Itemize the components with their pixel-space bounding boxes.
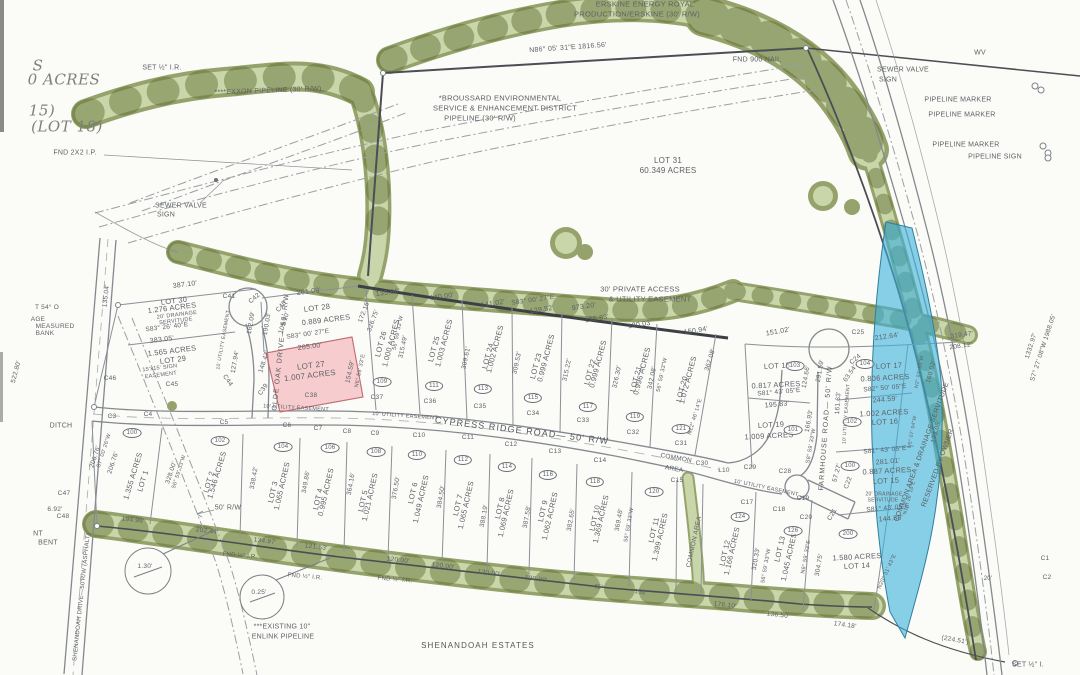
address-oval: 101 bbox=[784, 425, 803, 435]
monument-label: SET ½" I.R. bbox=[142, 65, 181, 72]
map-label: C36 bbox=[424, 399, 437, 406]
map-label: 309.61' bbox=[461, 346, 472, 370]
map-label: WV bbox=[974, 50, 986, 57]
address-oval: 115 bbox=[524, 393, 542, 403]
map-label: 304.75' bbox=[815, 553, 825, 577]
map-label: N6° 59' 33"E bbox=[355, 354, 367, 389]
map-label: DITCH bbox=[50, 423, 73, 430]
map-label: 383.05' bbox=[149, 335, 174, 345]
map-label: 291.59' bbox=[816, 359, 826, 383]
map-label: C44 bbox=[221, 374, 234, 388]
address-oval: 106 bbox=[321, 443, 340, 453]
map-label: 10' UTILITY EASEMENT bbox=[733, 479, 799, 498]
map-label: (LOT 18) bbox=[31, 120, 103, 135]
map-label: 162.09' bbox=[247, 311, 257, 335]
address-oval: 102 bbox=[843, 417, 862, 427]
map-label: 56° 59' 33"W bbox=[761, 548, 772, 583]
map-label: 56° 59' 33"W bbox=[657, 357, 670, 392]
map-label: C14 bbox=[594, 458, 607, 465]
plat-map-scan: S0 ACRES15)(LOT 18)SET ½" I.R.FND 2X2 I.… bbox=[0, 0, 1080, 675]
map-label: 60.349 ACRES bbox=[640, 167, 697, 175]
map-label: C5 bbox=[220, 420, 229, 427]
map-label: C37 bbox=[371, 395, 384, 402]
map-label: 338.42' bbox=[250, 466, 260, 490]
map-label: C4 bbox=[144, 412, 153, 419]
pipeline-label: ****EXXON PIPELINE (30' R/W) bbox=[214, 86, 321, 97]
map-label: C12 bbox=[505, 442, 518, 449]
map-label: SIGN bbox=[157, 212, 175, 219]
map-label: 150.94' bbox=[683, 326, 708, 337]
map-label: C48 bbox=[57, 514, 70, 521]
address-oval: 117 bbox=[579, 402, 597, 412]
map-label: 120.00' bbox=[477, 569, 500, 578]
map-label: 1.30' bbox=[137, 564, 152, 571]
monument-label: SET ½" I. bbox=[1012, 662, 1044, 669]
lot-16-label: LOT 16 bbox=[872, 418, 899, 427]
map-label: 309.53' bbox=[512, 351, 523, 375]
map-label: C17 bbox=[741, 500, 754, 507]
map-label: PIPELINE MARKER bbox=[924, 97, 991, 104]
map-label: C32 bbox=[627, 430, 640, 437]
map-label: 206.76' bbox=[107, 451, 120, 475]
map-label: C28 bbox=[779, 469, 792, 476]
map-label: L10 bbox=[718, 468, 730, 475]
map-label: C30 bbox=[696, 461, 709, 468]
map-label: 10' UTILITY EASEMENT bbox=[263, 405, 329, 414]
map-label: 151.02' bbox=[765, 326, 790, 337]
map-label: SEWER VALVE bbox=[877, 67, 929, 74]
map-label: SEWER VALVE bbox=[155, 203, 207, 210]
map-label: 973.20' bbox=[571, 302, 596, 312]
map-label: C39 bbox=[258, 383, 271, 397]
map-label: 208.12' bbox=[949, 342, 973, 352]
map-label: 121.53' bbox=[304, 543, 327, 552]
map-label: 320.33' bbox=[752, 547, 762, 571]
address-oval: 100 bbox=[841, 461, 860, 471]
map-label: 0.25' bbox=[251, 590, 266, 597]
map-label: C21 bbox=[827, 508, 839, 522]
map-label: 319.47' bbox=[950, 331, 974, 341]
address-oval: 110 bbox=[408, 450, 426, 460]
lot-14-label: LOT 14 bbox=[844, 562, 871, 571]
map-label: PIPELINE MARKER bbox=[928, 112, 995, 119]
map-label: C9 bbox=[371, 431, 380, 438]
map-label: 45' bbox=[593, 584, 603, 592]
map-label: C45 bbox=[166, 382, 179, 389]
map-label: 369.48' bbox=[615, 508, 625, 532]
map-label: C7 bbox=[314, 426, 323, 433]
map-label: 174.18' bbox=[833, 621, 857, 631]
map-label: 388.19' bbox=[480, 504, 490, 528]
map-label: C47 bbox=[58, 491, 71, 498]
map-label: N5° 07' 54"W bbox=[908, 415, 919, 448]
map-label: (224.51') bbox=[941, 635, 969, 646]
map-label: S83° 00' 27"E bbox=[286, 329, 330, 341]
map-label: 265.00' bbox=[297, 342, 322, 352]
map-label: C3 bbox=[108, 414, 117, 421]
map-label: S81° 43' 05"E bbox=[757, 388, 801, 398]
map-label: 139.52' bbox=[529, 305, 554, 316]
map-label: 376.50' bbox=[392, 476, 402, 500]
map-label: AREA bbox=[664, 465, 684, 475]
map-label: C20 bbox=[800, 515, 813, 522]
address-oval: 116 bbox=[539, 470, 557, 480]
labels-layer: S0 ACRES15)(LOT 18)SET ½" I.R.FND 2X2 I.… bbox=[0, 0, 1080, 675]
map-label: ENLINK PIPELINE bbox=[252, 634, 315, 641]
address-oval: 111 bbox=[425, 381, 443, 391]
map-label: 160.02' bbox=[926, 360, 938, 384]
map-label: 387.10' bbox=[172, 280, 197, 290]
map-label: 56° 59' 33"W bbox=[624, 507, 635, 542]
map-label: C34 bbox=[527, 411, 540, 418]
map-label: PIPELINE SIGN bbox=[968, 154, 1022, 161]
address-oval: 104 bbox=[274, 442, 293, 452]
pipeline-label: ***EXISTING 10" bbox=[254, 624, 311, 631]
address-oval: 113 bbox=[474, 384, 492, 394]
lot-19-label: LOT 19 bbox=[758, 421, 785, 430]
map-label: 135.83' bbox=[584, 314, 609, 325]
map-label: FND ½" I.R. bbox=[377, 575, 412, 584]
map-label: SERVITUDE bbox=[868, 499, 899, 504]
map-label: 244.59' bbox=[872, 395, 897, 404]
map-label: 176.10' bbox=[713, 601, 736, 610]
map-label: PIPELINE (30' R/W) bbox=[444, 114, 516, 122]
map-label: 194.96' bbox=[121, 517, 144, 526]
map-label: C11 bbox=[462, 435, 474, 442]
subdivision-caption: SHENANDOAH ESTATES bbox=[421, 642, 535, 650]
map-label: *BROUSSARD ENVIRONMENTAL bbox=[439, 94, 562, 102]
map-label: 0.887 ACRES bbox=[862, 466, 911, 476]
map-label: C31 bbox=[675, 441, 688, 448]
map-label: C35 bbox=[474, 404, 487, 411]
map-label: 0 ACRES bbox=[28, 73, 101, 88]
map-label: 315.22' bbox=[562, 358, 573, 382]
map-label: C18 bbox=[773, 507, 786, 514]
map-label: 141.02' bbox=[480, 299, 505, 310]
address-oval: 112 bbox=[454, 455, 472, 465]
map-label: C22 bbox=[844, 476, 854, 490]
map-label: 362.08' bbox=[705, 348, 718, 372]
map-label: 135.86' bbox=[375, 288, 400, 298]
boundary-bearing: N86° 05' 31"E 1816.56' bbox=[529, 42, 607, 54]
map-label: PRODUCTION/ERSKINE (30' R/W) bbox=[574, 10, 700, 18]
map-label: FND ½" I.R. bbox=[222, 551, 257, 560]
map-label: 15) bbox=[29, 104, 55, 119]
map-label: 190.03' bbox=[263, 312, 273, 336]
address-oval: 126 bbox=[784, 526, 803, 536]
address-oval: 120 bbox=[645, 487, 664, 497]
address-oval: 103 bbox=[786, 361, 805, 371]
map-label: C46 bbox=[104, 376, 117, 383]
map-label: C15 bbox=[671, 478, 684, 485]
map-label: 349.86' bbox=[302, 470, 312, 494]
address-oval: 119 bbox=[626, 412, 644, 422]
map-label: BENT bbox=[38, 540, 58, 547]
map-label: EASEMENT bbox=[145, 371, 178, 380]
map-label: 120.00' bbox=[524, 575, 547, 584]
map-label: S81° 43' 05"E bbox=[863, 446, 907, 456]
address-oval: 108 bbox=[367, 447, 386, 457]
map-label: 382.65' bbox=[567, 508, 577, 532]
map-label: C10 bbox=[413, 433, 426, 440]
map-label: SIGN bbox=[879, 77, 897, 84]
map-label: ERSKINE ENERGY ROYAL bbox=[596, 0, 695, 8]
address-oval: 124 bbox=[731, 512, 750, 522]
map-label: 10' UTILITY EASEMENT bbox=[372, 412, 438, 422]
map-label: 0.889 ACRES bbox=[301, 313, 351, 326]
map-label: 135.04' bbox=[102, 284, 111, 307]
lot-15-label: LOT 15 bbox=[873, 477, 900, 486]
map-label: 50' R/W bbox=[215, 505, 241, 512]
map-label: C33 bbox=[577, 418, 590, 425]
map-label: C29 bbox=[744, 465, 757, 472]
map-label: C1 bbox=[1041, 556, 1050, 563]
map-label: 161.63' bbox=[835, 391, 843, 414]
map-label: & UTILITY EASEMENT bbox=[609, 295, 692, 303]
map-label: C19 bbox=[797, 496, 810, 503]
map-label: C41 bbox=[223, 294, 236, 301]
map-label: T 54° O bbox=[35, 305, 59, 312]
address-oval: 102 bbox=[211, 436, 230, 446]
map-label: 134.97' bbox=[253, 537, 276, 546]
map-label: NT bbox=[33, 531, 43, 538]
map-label: FND 900 NAIL bbox=[733, 57, 782, 64]
map-label: 130.03' bbox=[627, 320, 652, 331]
map-label: C2 bbox=[1043, 575, 1052, 582]
address-oval: 100 bbox=[123, 428, 142, 438]
map-label: C8 bbox=[343, 429, 352, 436]
map-label: S8° 59' 33"W bbox=[806, 428, 818, 464]
map-label: 120.00' bbox=[431, 562, 454, 571]
map-label: 124.66' bbox=[802, 365, 812, 389]
road-label-farmhouse-road: FARMHOUSE ROAD— 50' R/W bbox=[818, 365, 834, 491]
map-label: S83° 26' 40"E bbox=[145, 322, 189, 334]
map-label: 120.00' bbox=[386, 556, 409, 565]
address-oval: 118 bbox=[586, 477, 604, 487]
lot-31-label: LOT 31 bbox=[654, 157, 682, 165]
map-label: BANK bbox=[36, 331, 55, 338]
map-label: S82° 50' 05"E bbox=[863, 384, 907, 394]
map-label: C25 bbox=[852, 330, 865, 337]
map-label: 326.30' bbox=[612, 365, 623, 389]
lot-17-label: LOT 17 bbox=[876, 362, 903, 371]
map-label: 136.50' bbox=[766, 611, 789, 620]
map-label: SERVICE & ENHANCEMENT DISTRICT bbox=[433, 104, 577, 112]
map-label: 10' UTILITY EASEMENT bbox=[842, 384, 851, 445]
map-label: PIPELINE MARKER bbox=[932, 142, 999, 149]
address-oval: 114 bbox=[498, 462, 516, 472]
address-oval: 109 bbox=[373, 377, 392, 387]
road-label-shenandoah-drive: SHENANDOAH DRIVE—50'R/W (ASPHALT) bbox=[72, 533, 91, 662]
map-label: C42 bbox=[248, 292, 262, 305]
common-area-strip-label: COMMON AREA bbox=[686, 516, 703, 568]
map-label: 364.16' bbox=[347, 472, 357, 496]
map-label: 152 bbox=[634, 589, 646, 597]
map-label: 195.83' bbox=[764, 400, 789, 409]
map-label: 261.09' bbox=[296, 287, 321, 297]
access-easement-label: 30' PRIVATE ACCESS bbox=[600, 285, 680, 293]
lot-28-label: LOT 28 bbox=[303, 303, 330, 314]
map-label: 522.80' bbox=[11, 360, 23, 384]
address-oval: 200 bbox=[839, 529, 858, 539]
address-oval: 104 bbox=[856, 359, 875, 369]
map-label: 10' UTILITY EASEMENT bbox=[216, 310, 231, 370]
map-label: N12° 46' 14"E bbox=[688, 398, 704, 435]
map-label: 0.806 ACRES bbox=[860, 373, 909, 383]
map-label: C13 bbox=[549, 449, 562, 456]
map-label: 148.47' bbox=[258, 350, 271, 374]
map-label: C6 bbox=[283, 423, 292, 430]
map-label: 1.007 ACRES bbox=[284, 369, 337, 383]
map-label: 140.00' bbox=[429, 292, 454, 302]
map-label: 20' bbox=[984, 576, 993, 582]
map-label: 384.50' bbox=[437, 485, 447, 509]
map-label: 212.64' bbox=[874, 332, 899, 342]
monument-label: FND 2X2 I.P. bbox=[53, 150, 96, 157]
map-label: N6° 59' 33"E bbox=[801, 540, 812, 575]
map-label: 63.54' bbox=[843, 364, 859, 383]
map-label: 387.58' bbox=[523, 505, 533, 529]
map-label: N2° 03' 55"W bbox=[915, 355, 926, 388]
map-label: C38 bbox=[305, 393, 318, 400]
map-label: 202.44' bbox=[195, 527, 218, 536]
map-label: FND ½" I.R. bbox=[287, 572, 322, 581]
map-label: 127.94' bbox=[231, 350, 241, 374]
